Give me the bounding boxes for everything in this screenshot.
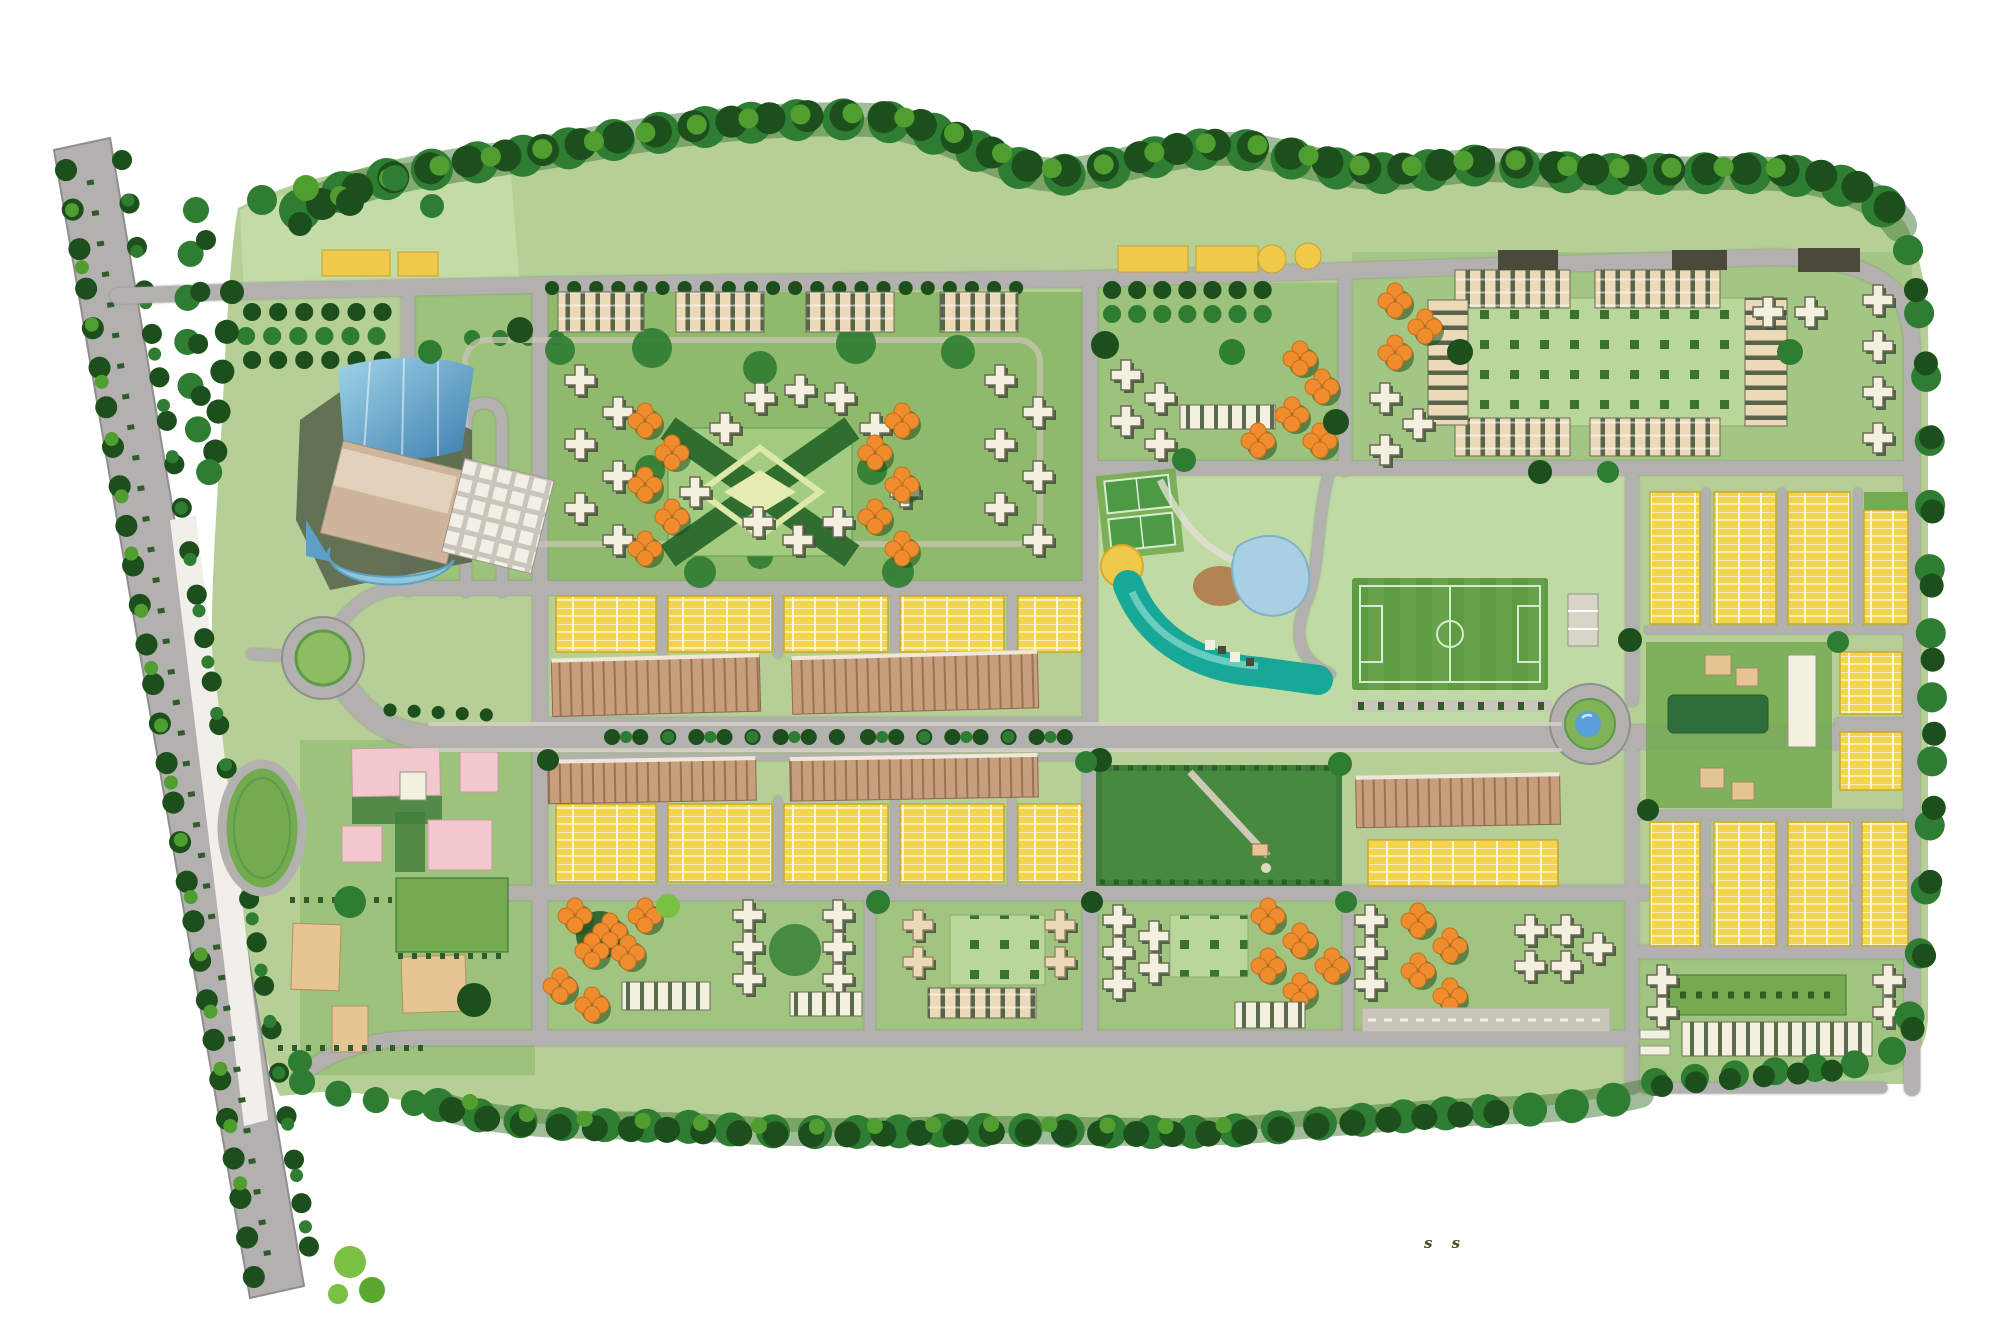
- plot-mark-text: s s: [1424, 1234, 1467, 1252]
- park-pavilion: [1252, 844, 1268, 856]
- playfield: [396, 878, 508, 952]
- avenue-end-bushes: [328, 1246, 385, 1304]
- meadow-yellow-building: [322, 250, 390, 276]
- service-pond: [1668, 695, 1768, 733]
- courtyard-garden: [1468, 298, 1778, 426]
- utility-block: [1646, 642, 1832, 808]
- meadow-yellow-building: [398, 252, 438, 276]
- lake: [1232, 536, 1309, 616]
- central-park: [1096, 765, 1342, 886]
- site-plan-map: s s: [0, 0, 2000, 1333]
- service-building: [1788, 655, 1816, 747]
- dark-roof-buildings: [1498, 248, 1860, 272]
- football-field: [1352, 578, 1548, 690]
- west-roundabout: [282, 617, 364, 699]
- clubhouse-glass-roof: [338, 357, 474, 458]
- master-plan-canvas: s s: [0, 0, 2000, 1333]
- tennis-courts: [1096, 468, 1184, 560]
- basketball-court: [1568, 594, 1598, 646]
